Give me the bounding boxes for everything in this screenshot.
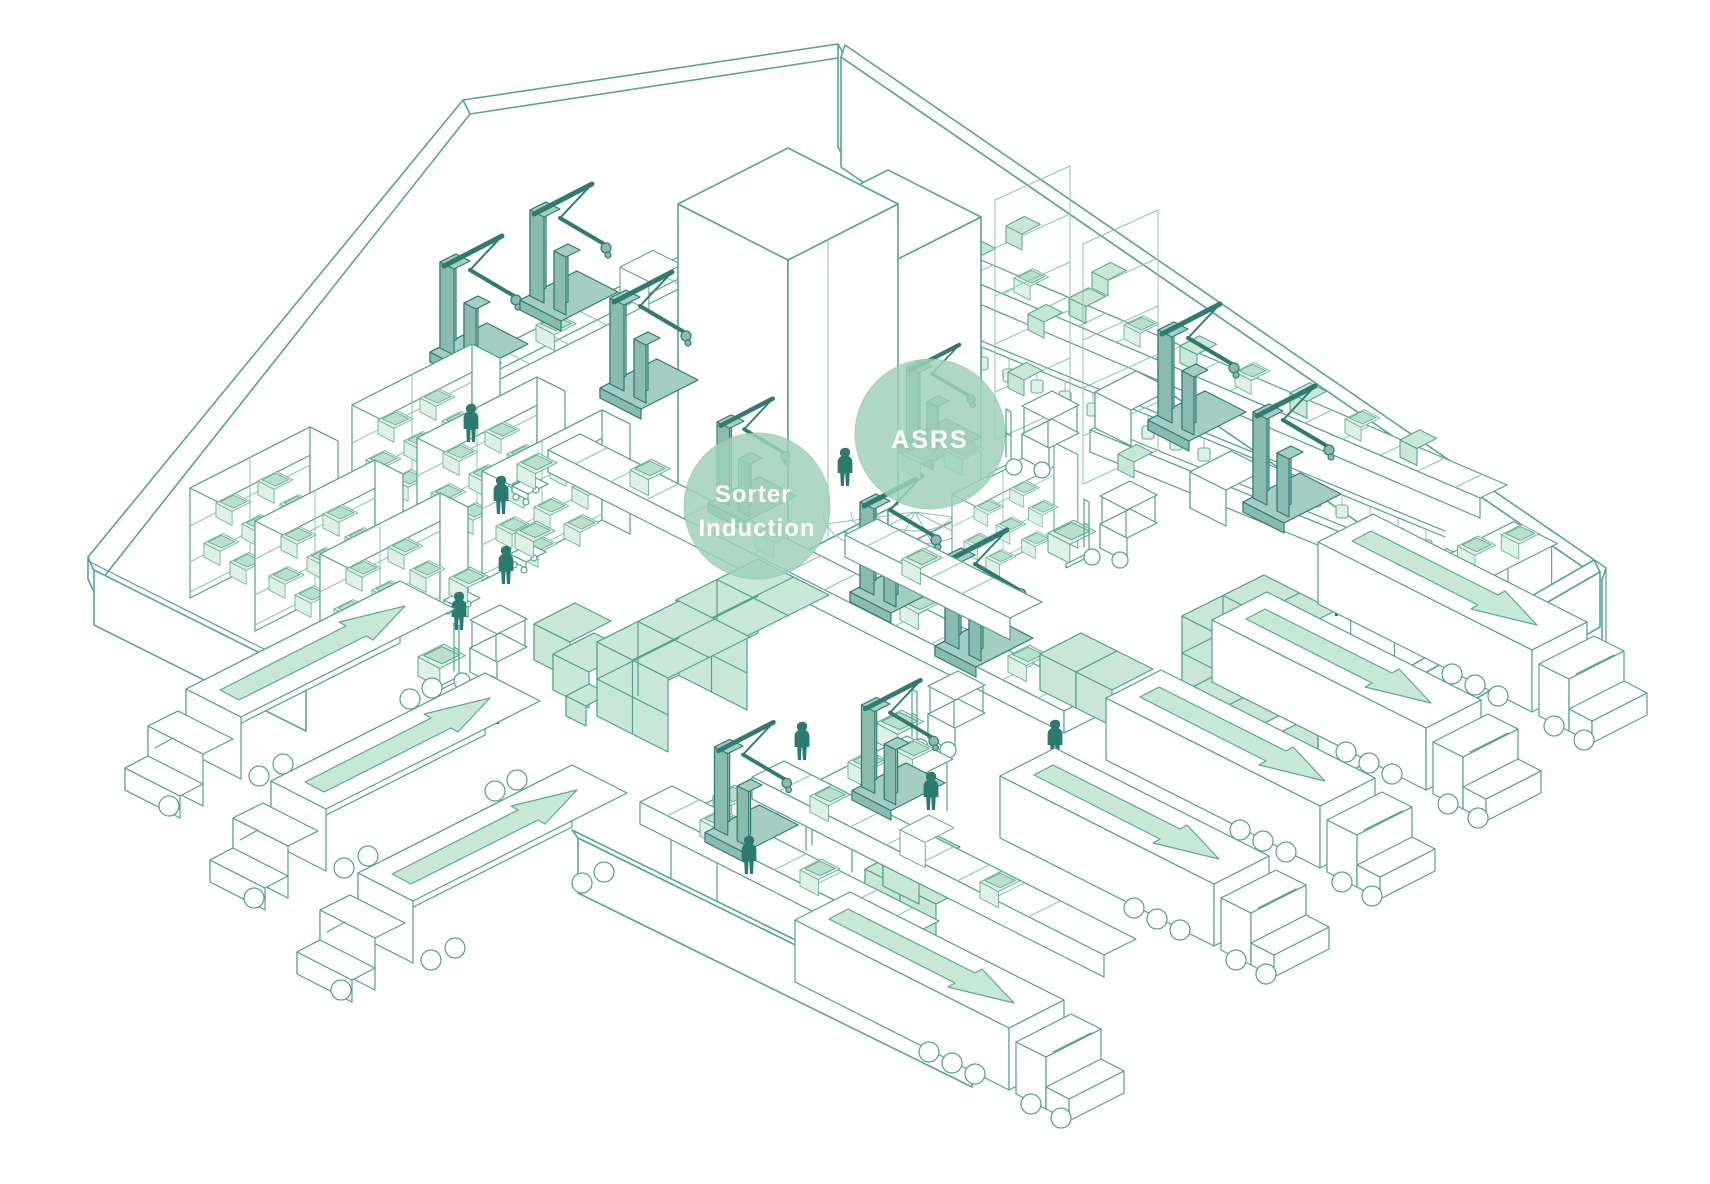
top-wall — [463, 44, 845, 114]
asrs-label: ASRS — [891, 426, 968, 454]
warehouse-automation-diagram: Sorter Induction ASRS — [0, 0, 1710, 1184]
callout-asrs: ASRS — [855, 359, 1005, 509]
callout-sorter-induction: Sorter Induction — [684, 433, 830, 579]
worker-icon — [795, 722, 810, 760]
